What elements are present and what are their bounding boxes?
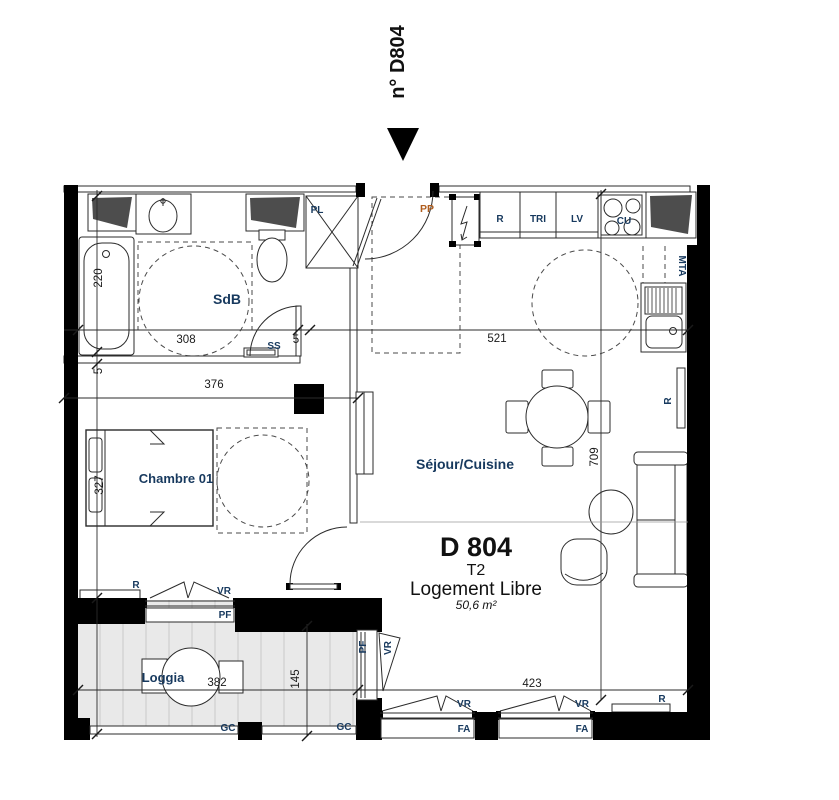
dim-living-depth: 709 [589,447,601,466]
pouf [589,490,633,534]
label-fixed-window2: FA [576,724,589,735]
dim-bathroom-width: 308 [176,334,195,346]
floor-plan-page: n° D804 SdB Chambre 01 Séjour/Cuisine Lo… [0,0,839,800]
armchair [561,539,607,585]
unit-marker-label: n° D804 [387,24,409,98]
label-window-loggia: PF [358,641,369,654]
kitchen-sink [641,283,686,352]
room-label-living: Séjour/Cuisine [416,456,514,472]
washbasin [136,194,191,234]
dim-loggia-depth: 145 [290,669,302,688]
bedroom-radiator [80,590,140,599]
sofa [634,452,688,587]
loggia-door [357,630,400,700]
living-radiator-bottom [612,704,670,712]
dim-bathroom-depth: 220 [93,268,105,287]
living-radiator-wall [677,368,685,428]
bathtub [79,237,134,355]
dim-bedroom-depth: 327 [94,475,106,494]
kitchen-counter [480,192,648,238]
bedroom-door [290,527,347,589]
label-cooktop: CU [617,216,631,227]
label-radiator-bedroom: R [132,580,140,591]
unit-area: 50,6 m² [456,598,498,612]
label-radiator-bottom: R [658,694,666,705]
label-duct: MTA [676,256,687,277]
dim-partition-b: 5 [93,368,105,374]
label-guardrail-2: GC [337,722,352,733]
unit-pointer-icon [387,128,419,161]
label-guardrail-1: GC [221,723,236,734]
entry-door [365,191,433,259]
label-closet: PL [311,205,324,216]
label-shutter-bedroom: VR [217,586,232,597]
dim-living-width: 521 [487,333,506,345]
duct-shaft [294,384,324,414]
label-waste-sorting: TRI [530,214,546,225]
toilet [246,194,304,282]
label-shutter-window2: VR [575,699,590,710]
room-label-bathroom: SdB [213,291,241,307]
dim-windows-span: 423 [522,678,541,690]
label-entry-door: PP [420,203,434,215]
unit-type: T2 [467,562,486,579]
wall-desk [356,392,373,474]
dim-loggia-width: 382 [207,677,226,689]
label-radiator-wall: R [663,397,674,405]
room-label-bedroom: Chambre 01 [139,471,213,486]
dim-partition-a: 5 [293,334,299,346]
dim-bedroom-width: 376 [204,379,223,391]
room-label-loggia: Loggia [142,670,185,685]
unit-number: D 804 [440,532,512,562]
kitchen-corner-unit [646,192,696,238]
label-window-bedroom: PF [219,610,232,621]
unit-status: Logement Libre [410,579,542,600]
label-shutter-window1: VR [457,699,472,710]
label-fridge: R [496,214,504,225]
label-shutter-loggia: VR [383,640,394,655]
label-dishwasher: LV [571,214,583,225]
floor-plan-drawing: n° D804 SdB Chambre 01 Séjour/Cuisine Lo… [0,0,839,800]
label-towel-rail: SS [267,341,281,352]
label-fixed-window1: FA [458,724,471,735]
clearance-zones [138,197,665,533]
electrical-panel [449,194,481,247]
